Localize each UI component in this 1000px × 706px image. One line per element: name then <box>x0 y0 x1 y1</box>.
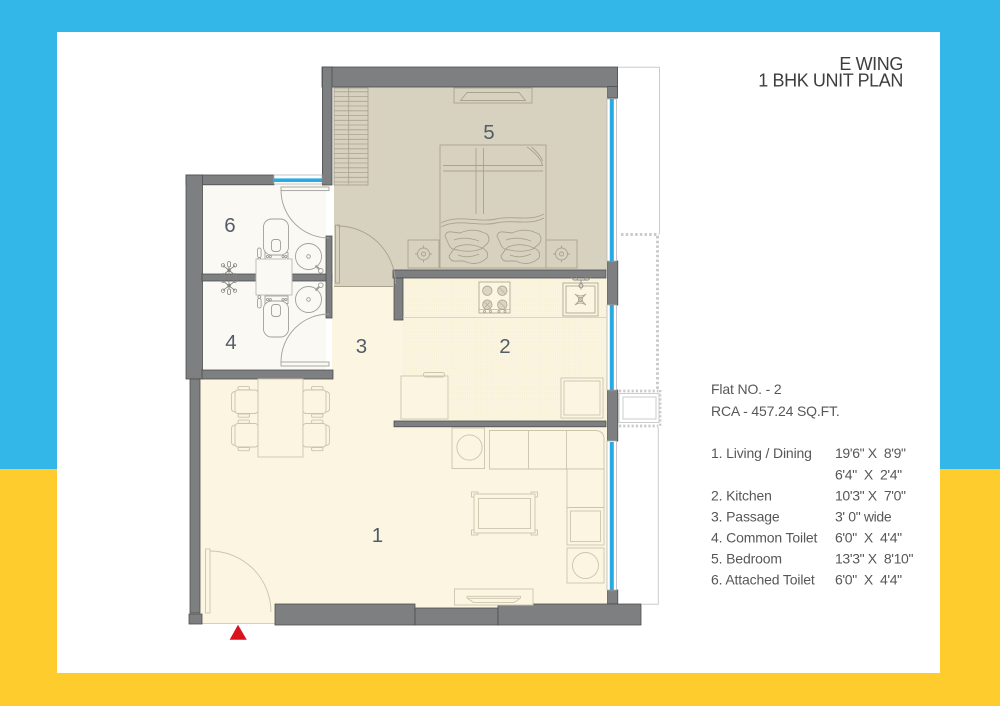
svg-text:2: 2 <box>499 335 510 358</box>
svg-text:Flat NO. - 2: Flat NO. - 2 <box>711 381 782 397</box>
svg-text:5. Bedroom: 5. Bedroom <box>711 551 782 567</box>
svg-text:2. Kitchen: 2. Kitchen <box>711 488 772 504</box>
svg-text:6'0" X 4'4": 6'0" X 4'4" <box>835 572 902 588</box>
svg-text:6'4" X 2'4": 6'4" X 2'4" <box>835 467 902 483</box>
svg-text:6: 6 <box>224 214 235 237</box>
svg-text:10'3" X 7'0": 10'3" X 7'0" <box>835 488 906 504</box>
svg-text:6. Attached Toilet: 6. Attached Toilet <box>711 572 815 588</box>
svg-text:1: 1 <box>372 524 383 547</box>
svg-text:6'0" X 4'4": 6'0" X 4'4" <box>835 530 902 546</box>
svg-text:19'6" X 8'9": 19'6" X 8'9" <box>835 445 906 461</box>
svg-text:3. Passage: 3. Passage <box>711 509 780 525</box>
svg-text:1. Living / Dining: 1. Living / Dining <box>711 445 812 461</box>
svg-text:RCA - 457.24 SQ.FT.: RCA - 457.24 SQ.FT. <box>711 403 840 419</box>
svg-text:4: 4 <box>225 331 236 354</box>
svg-text:13'3" X 8'10": 13'3" X 8'10" <box>835 551 913 567</box>
svg-text:1 BHK UNIT PLAN: 1 BHK UNIT PLAN <box>758 71 903 91</box>
svg-text:4. Common Toilet: 4. Common Toilet <box>711 530 818 546</box>
svg-text:3' 0" wide: 3' 0" wide <box>835 509 892 525</box>
svg-text:3: 3 <box>356 335 367 358</box>
svg-text:5: 5 <box>483 121 494 144</box>
